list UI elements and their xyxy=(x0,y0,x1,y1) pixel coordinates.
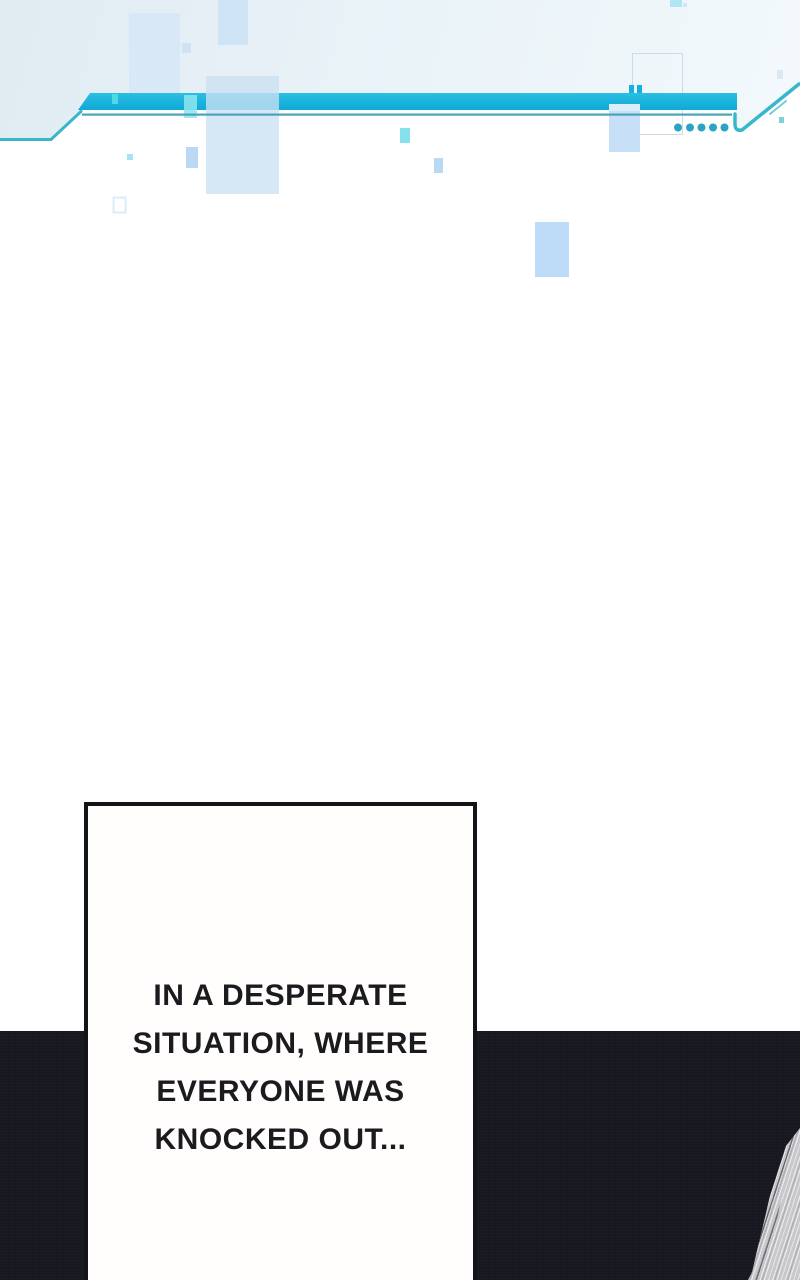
narration-line: IN A DESPERATE xyxy=(153,972,407,1020)
narration-box: IN A DESPERATE SITUATION, WHERE EVERYONE… xyxy=(84,802,477,1280)
narration-line: EVERYONE WAS xyxy=(156,1068,404,1116)
header-decoration xyxy=(0,0,800,300)
thin-guide-line xyxy=(82,114,732,116)
tinted-band xyxy=(0,0,800,140)
narration-line: SITUATION, WHERE xyxy=(133,1020,429,1068)
narration-line: KNOCKED OUT... xyxy=(154,1116,406,1164)
